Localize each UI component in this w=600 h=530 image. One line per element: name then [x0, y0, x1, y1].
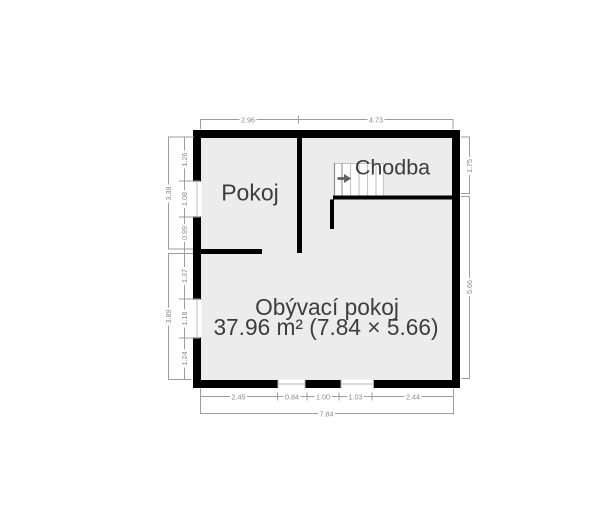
svg-text:2.45: 2.45 — [232, 392, 246, 401]
svg-text:1.08: 1.08 — [180, 192, 189, 206]
svg-text:1.75: 1.75 — [465, 159, 474, 173]
svg-text:3.38: 3.38 — [164, 187, 173, 201]
svg-text:1.37: 1.37 — [180, 269, 189, 283]
svg-text:5.66: 5.66 — [465, 280, 474, 294]
svg-text:7.84: 7.84 — [320, 409, 334, 418]
svg-text:1.26: 1.26 — [180, 153, 189, 167]
svg-text:1.18: 1.18 — [180, 312, 189, 326]
svg-text:1.03: 1.03 — [349, 392, 363, 401]
svg-text:3.89: 3.89 — [164, 310, 173, 324]
svg-text:37.96 m² (7.84 × 5.66): 37.96 m² (7.84 × 5.66) — [213, 314, 438, 340]
svg-text:Chodba: Chodba — [355, 156, 430, 180]
svg-text:2.44: 2.44 — [406, 392, 420, 401]
svg-text:0.84: 0.84 — [285, 392, 299, 401]
svg-text:4.73: 4.73 — [369, 115, 383, 124]
svg-text:2.96: 2.96 — [241, 115, 255, 124]
svg-text:0.99: 0.99 — [180, 226, 189, 240]
svg-text:1.24: 1.24 — [180, 352, 189, 366]
svg-text:Pokoj: Pokoj — [221, 180, 279, 206]
svg-text:1.00: 1.00 — [316, 392, 330, 401]
